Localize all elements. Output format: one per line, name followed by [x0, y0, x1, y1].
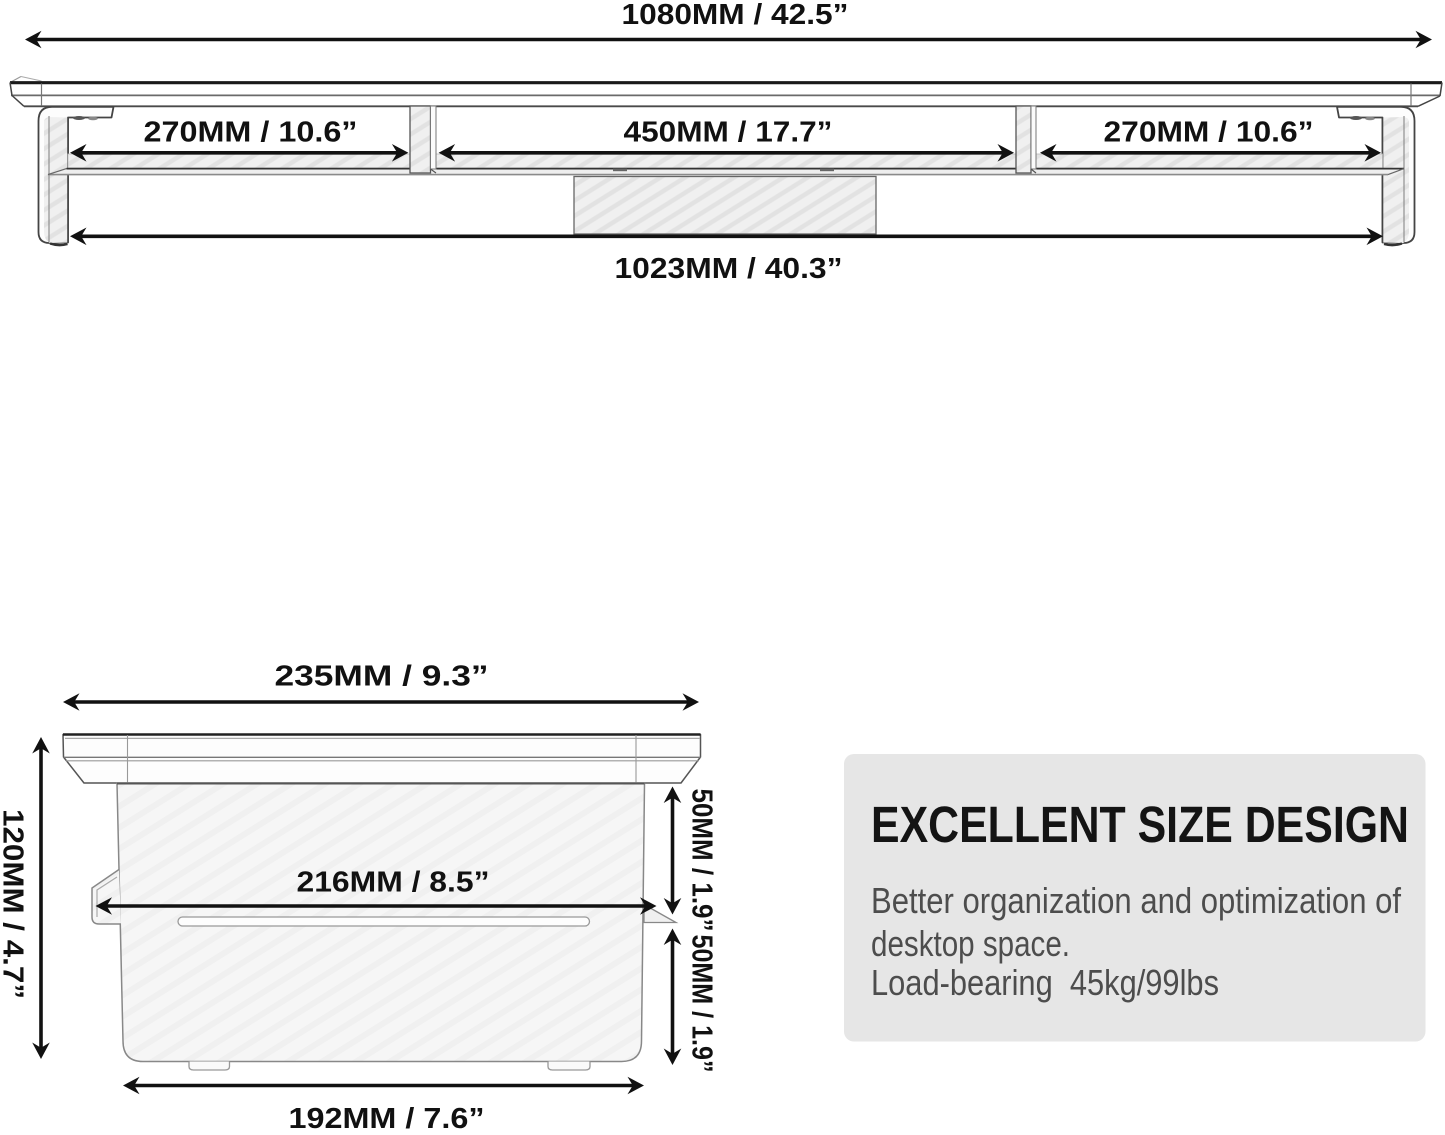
svg-text:desktop space.: desktop space.	[871, 923, 1070, 964]
svg-text:50MM / 1.9”: 50MM / 1.9”	[686, 935, 718, 1073]
svg-text:270MM / 10.6”: 270MM / 10.6”	[1104, 117, 1314, 149]
svg-text:EXCELLENT SIZE DESIGN: EXCELLENT SIZE DESIGN	[871, 796, 1409, 853]
svg-text:1080MM / 42.5”: 1080MM / 42.5”	[622, 0, 849, 31]
svg-text:235MM / 9.3”: 235MM / 9.3”	[275, 661, 489, 693]
svg-text:1023MM / 40.3”: 1023MM / 40.3”	[615, 253, 843, 285]
svg-text:50MM / 1.9”: 50MM / 1.9”	[686, 789, 718, 932]
svg-text:270MM / 10.6”: 270MM / 10.6”	[144, 117, 358, 149]
svg-text:Load-bearing 45kg/99lbs: Load-bearing 45kg/99lbs	[871, 962, 1219, 1003]
svg-text:192MM / 7.6”: 192MM / 7.6”	[289, 1103, 485, 1135]
svg-text:Better organization and optimi: Better organization and optimization of	[871, 880, 1402, 921]
svg-text:216MM / 8.5”: 216MM / 8.5”	[297, 867, 490, 899]
svg-text:450MM / 17.7”: 450MM / 17.7”	[624, 117, 833, 149]
svg-text:120MM / 4.7”: 120MM / 4.7”	[0, 809, 29, 999]
